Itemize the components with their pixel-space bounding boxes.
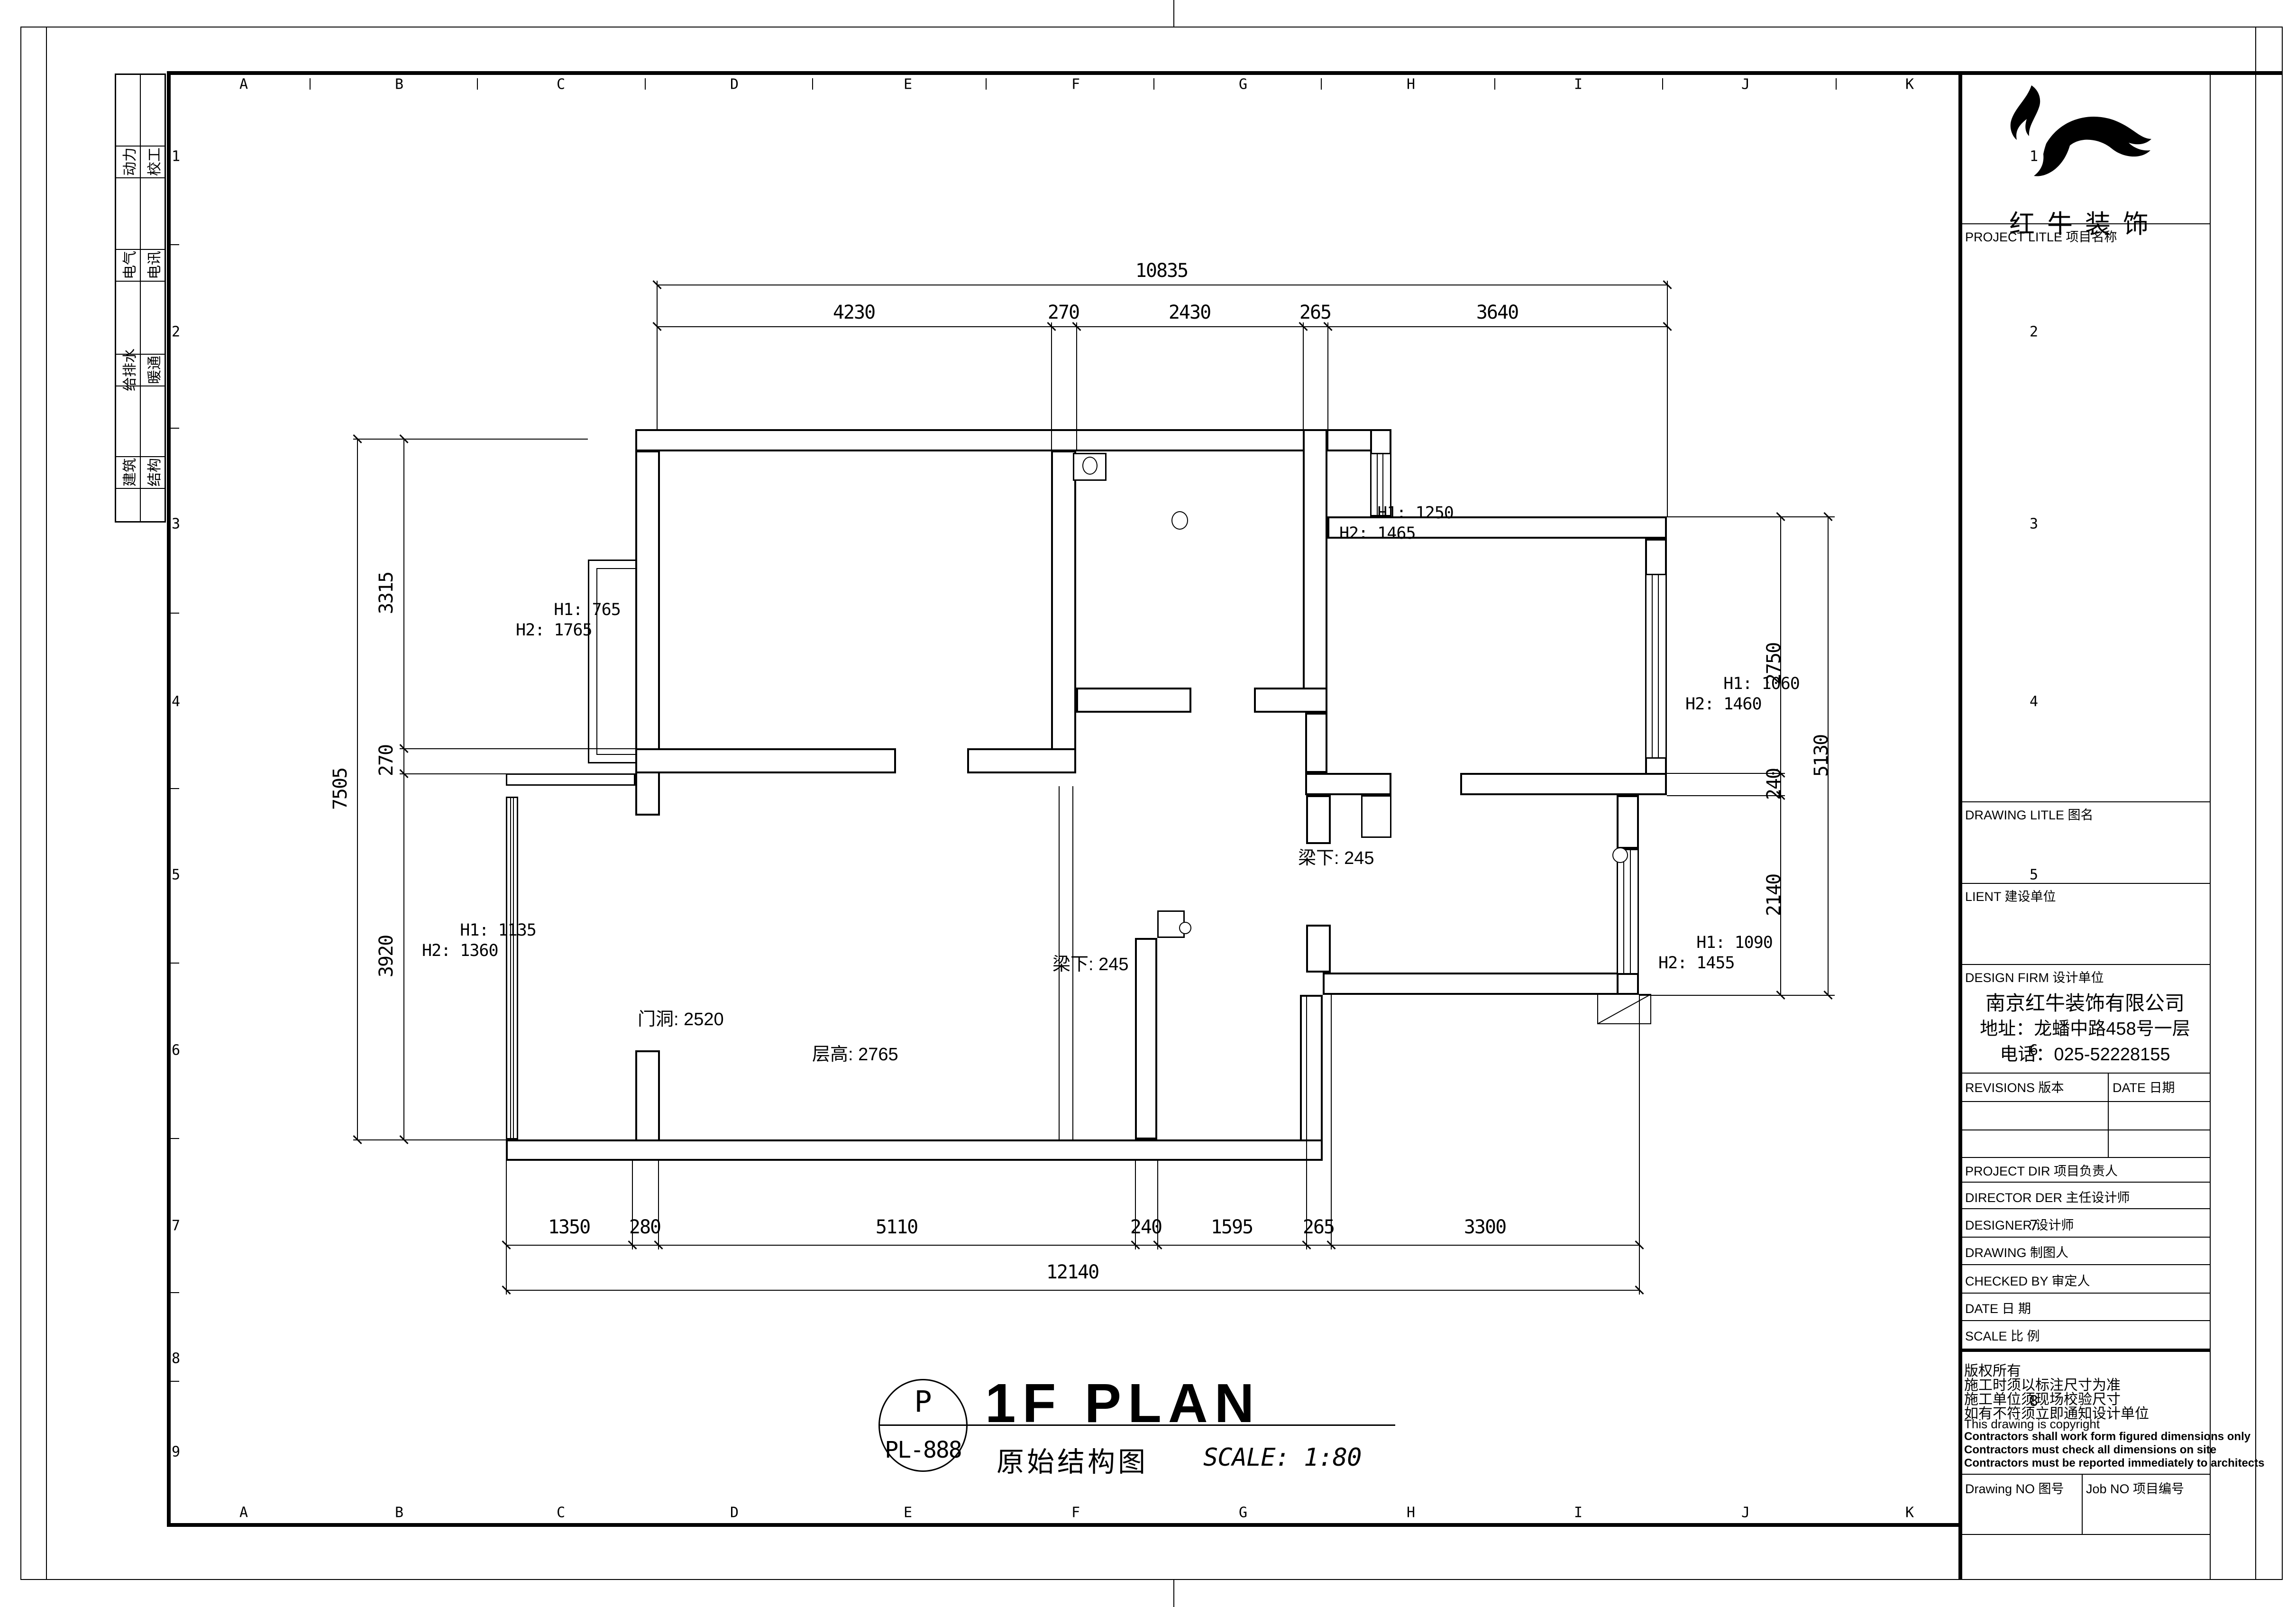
grid-letter-top: G <box>1239 76 1247 93</box>
ext-line <box>1327 322 1328 450</box>
wall-bottomright-right-upper <box>1617 795 1639 849</box>
ext-line <box>400 773 635 774</box>
grid-number-left: 1 <box>172 148 180 165</box>
tb-revisions-label: REVISIONS 版本 <box>1965 1077 2064 1096</box>
dim-left-seg: 3920 <box>375 936 397 977</box>
grid-tick <box>1494 78 1495 90</box>
tb-date-header: DATE 日期 <box>2113 1077 2175 1096</box>
wall-bedroom1-right <box>1051 450 1076 773</box>
beam-note: 梁下: 245 <box>1298 843 1374 869</box>
dim-line <box>506 1245 1639 1246</box>
dim-left-total: 7505 <box>329 768 351 810</box>
dim-top-seg: 3640 <box>1476 302 1518 323</box>
beam-note: 梁下: 245 <box>1052 949 1129 975</box>
floor-height-note: 层高: 2765 <box>812 1039 898 1065</box>
dim-line <box>403 439 404 1139</box>
dim-bottom-seg: 1595 <box>1211 1216 1253 1238</box>
tb-row-label: DIRECTOR DER 主任设计师 <box>1965 1187 2130 1206</box>
grid-letter-top: E <box>904 76 912 93</box>
grid-letter-bottom: G <box>1239 1505 1247 1521</box>
tb-line <box>1962 883 2210 884</box>
grid-letter-top: I <box>1574 76 1583 93</box>
tb-row-label: SCALE 比 例 <box>1965 1326 2040 1344</box>
tb-line <box>1962 801 2210 802</box>
dim-top-seg: 2430 <box>1169 302 1210 323</box>
grid-number-left: 8 <box>172 1350 180 1367</box>
floor-drain <box>1171 511 1188 530</box>
ext-line <box>1076 322 1077 450</box>
grid-tick <box>986 78 987 90</box>
tb-line <box>1962 1129 2210 1130</box>
grid-number-right: 3 <box>2030 516 2038 533</box>
tb-line <box>2082 1474 2083 1534</box>
discipline-label: 建筑 <box>118 458 139 487</box>
tb-line <box>1962 1320 2210 1321</box>
wall-bath-right <box>1303 429 1327 713</box>
dim-bottom-seg: 1350 <box>548 1216 590 1238</box>
wall-hall-topright <box>1305 713 1327 773</box>
tb-line <box>1962 223 2210 224</box>
ext-line <box>353 439 588 440</box>
grid-tick <box>477 78 478 90</box>
window-topright-room <box>1645 574 1667 759</box>
grid-tick <box>310 78 311 90</box>
tb-drawing-label: DRAWING LITLE 图名 <box>1965 805 2094 823</box>
tb-drawingno-label: Drawing NO 图号 <box>1965 1478 2064 1497</box>
tb-company: 南京红牛装饰有限公司 <box>1985 987 2185 1016</box>
wall-bedroom1-bottom-left <box>635 748 896 773</box>
wall-step-top <box>1370 429 1391 455</box>
grid-letter-top: D <box>730 76 739 93</box>
grid-letter-bottom: D <box>730 1505 739 1521</box>
grid-letter-top: B <box>395 76 403 93</box>
discipline-label: 电气 <box>118 251 139 279</box>
window-bottomright-room <box>1617 849 1639 974</box>
pipe-circle <box>1612 847 1628 863</box>
tb-row-label: CHECKED BY 审定人 <box>1965 1271 2090 1289</box>
grid-tick <box>645 78 646 90</box>
titleblock-divider <box>1958 71 1962 1580</box>
grid-tick <box>167 1381 179 1382</box>
grid-tick <box>1836 78 1837 90</box>
discipline-label: 电讯 <box>143 251 164 279</box>
dim-left-seg: 270 <box>375 745 397 776</box>
plan-title: 1F PLAN <box>985 1371 1261 1435</box>
tb-line <box>1962 1182 2210 1183</box>
ext-line <box>1667 516 1835 517</box>
dim-bottom-total: 12140 <box>1046 1261 1098 1283</box>
grid-letter-bottom: H <box>1407 1505 1415 1521</box>
grid-tick <box>167 1138 179 1139</box>
dim-line <box>657 326 1667 327</box>
wall-bottomright-left-upper <box>1306 795 1331 844</box>
tb-line <box>1962 1293 2210 1294</box>
title-bubble-letter: P <box>914 1385 932 1419</box>
dim-bottom-seg: 280 <box>629 1216 660 1238</box>
frame-bottom <box>167 1523 1962 1527</box>
grid-number-left: 7 <box>172 1218 180 1234</box>
ext-line <box>1639 995 1640 1295</box>
plan-scale: SCALE: 1:80 <box>1203 1443 1361 1472</box>
grid-tick <box>167 613 179 614</box>
shaft-symbol <box>1597 994 1651 1024</box>
ext-line <box>1306 995 1307 1249</box>
grid-tick <box>167 428 179 429</box>
outer-border-left2 <box>46 27 47 1580</box>
tb-firm-label: DESIGN FIRM 设计单位 <box>1965 967 2104 986</box>
tb-jobno-label: Job NO 项目编号 <box>2086 1478 2184 1497</box>
ext-line <box>1667 281 1668 516</box>
ext-line <box>657 281 658 429</box>
title-bubble-code: PL-888 <box>885 1437 961 1463</box>
grid-letter-top: K <box>1905 76 1914 93</box>
drawing-sheet: A B C D E F G H I J K A B C D E F G H I … <box>0 0 2296 1607</box>
dim-top-seg: 265 <box>1299 302 1331 323</box>
ext-line <box>353 1139 507 1140</box>
tb-line <box>1962 1237 2210 1238</box>
tb-line <box>1962 1073 2210 1074</box>
outer-border-left1 <box>20 27 21 1580</box>
frame-top <box>167 71 2283 75</box>
grid-tick <box>167 963 179 964</box>
tb-row-label: DRAWING 制图人 <box>1965 1242 2068 1261</box>
dim-top-seg: 270 <box>1048 302 1079 323</box>
dim-bottom-seg: 3300 <box>1464 1216 1506 1238</box>
grid-tick <box>167 1292 179 1293</box>
window-label: H1: 765H2: 1765 <box>516 579 621 661</box>
dim-line <box>357 439 358 1139</box>
ext-line <box>1639 995 1835 996</box>
tb-line <box>1962 1474 2210 1475</box>
grid-letter-bottom: B <box>395 1505 403 1521</box>
frame-left <box>167 71 171 1527</box>
wall-living-bottom <box>506 1139 1323 1161</box>
discipline-label: 结构 <box>143 458 164 487</box>
wall-bedroom1-bottom-right <box>967 748 1076 773</box>
dim-top-total: 10835 <box>1135 260 1188 282</box>
grid-letter-top: J <box>1741 76 1750 93</box>
window-label: H1: 1060H2: 1460 <box>1685 653 1800 735</box>
grid-letter-top: H <box>1407 76 1415 93</box>
tb-line <box>1962 1208 2210 1209</box>
discipline-label: 给排水 <box>118 349 139 391</box>
door-opening-note: 门洞: 2520 <box>638 1004 724 1030</box>
brand-logo-icon <box>2001 83 2171 185</box>
dim-right-outer: 5130 <box>1811 735 1832 777</box>
outer-border-right2 <box>2282 27 2283 1580</box>
ext-line <box>1331 995 1332 1249</box>
wall-bottomright-bottom <box>1323 973 1639 995</box>
titleblock-right-edge <box>2210 73 2211 1579</box>
plan-subtitle-cn: 原始结构图 <box>997 1440 1148 1479</box>
tb-line <box>1962 1157 2210 1158</box>
grid-tick <box>167 244 179 245</box>
tb-line-thick <box>1962 1349 2210 1352</box>
tb-note: This drawing is copyright <box>1964 1417 2100 1432</box>
tb-row-label: DESIGNER 设计师 <box>1965 1215 2074 1233</box>
tb-address: 地址：龙蟠中路458号一层 <box>1980 1014 2190 1040</box>
tb-phone: 电话：025-52228155 <box>2000 1039 2170 1065</box>
grid-letter-bottom: A <box>239 1505 248 1521</box>
wall-step <box>1300 995 1323 1161</box>
grid-number-left: 5 <box>172 867 180 883</box>
dim-left-seg: 3315 <box>375 572 397 614</box>
window-label: H1: 1250H2: 1465 <box>1339 483 1454 564</box>
discipline-label: 暖通 <box>143 356 164 384</box>
grid-number-left: 4 <box>172 694 180 710</box>
discipline-label: 动力 <box>118 147 139 176</box>
flue-circle <box>1082 457 1098 475</box>
grid-letter-bottom: J <box>1741 1505 1750 1521</box>
dim-right-seg: 240 <box>1763 769 1785 800</box>
grid-number-left: 2 <box>172 324 180 340</box>
tb-note: Contractors must check all dimensions on… <box>1964 1443 2216 1457</box>
grid-letter-top: F <box>1071 76 1080 93</box>
grid-letter-bottom: K <box>1905 1505 1914 1521</box>
grid-number-left: 9 <box>172 1444 180 1460</box>
window-label: H1: 1090H2: 1455 <box>1658 912 1773 994</box>
wall-mid-right-b <box>1460 773 1667 795</box>
wall-top <box>635 429 1391 451</box>
outer-border-top <box>20 27 2283 28</box>
ext-line <box>400 748 635 749</box>
dim-bottom-seg: 5110 <box>876 1216 917 1238</box>
grid-letter-bottom: I <box>1574 1505 1583 1521</box>
grid-number-right: 5 <box>2030 867 2038 883</box>
tb-line <box>1962 1534 2210 1535</box>
wall-bath-bottom-right <box>1254 688 1327 713</box>
grid-tick <box>1153 78 1154 90</box>
outer-border-bottom <box>20 1579 2283 1580</box>
window-label: H1: 1135H2: 1360 <box>422 900 536 982</box>
ext-line <box>1303 322 1304 450</box>
outer-border-right1 <box>2255 27 2256 1580</box>
fold-mark-bottom <box>1173 1579 1174 1607</box>
wall-bottomright-left-lower <box>1306 925 1331 973</box>
fold-mark-top <box>1173 0 1174 27</box>
tb-row-label: DATE 日 期 <box>1965 1298 2031 1317</box>
grid-letter-top: A <box>239 76 248 93</box>
grid-letter-bottom: F <box>1071 1505 1080 1521</box>
dim-bottom-seg: 265 <box>1303 1216 1334 1238</box>
grid-tick <box>812 78 813 90</box>
tb-row-label: PROJECT DIR 项目负责人 <box>1965 1161 2118 1179</box>
grid-number-left: 3 <box>172 516 180 533</box>
tb-line <box>1962 1101 2210 1102</box>
wall-living-right <box>1135 938 1157 1139</box>
wall-mid-right-a <box>1305 773 1391 795</box>
grid-tick <box>1662 78 1663 90</box>
tb-note: Contractors shall work form figured dime… <box>1964 1430 2250 1443</box>
dim-right-seg: 2140 <box>1763 874 1785 916</box>
dim-bottom-seg: 240 <box>1130 1216 1162 1238</box>
grid-tick <box>1321 78 1322 90</box>
tb-note: Contractors must be reported immediately… <box>1964 1457 2265 1470</box>
wall-bottomright-right-lower <box>1617 973 1639 995</box>
tb-project-label: PROJECT LITLE 项目名称 <box>1965 227 2117 245</box>
wall-balcony-top <box>506 773 635 786</box>
wall-topright-room-right-upper <box>1645 539 1667 577</box>
tb-line <box>2108 1073 2109 1157</box>
ext-line <box>506 1161 507 1295</box>
tb-line <box>1962 1264 2210 1265</box>
tb-line <box>1962 964 2210 965</box>
grid-letter-bottom: E <box>904 1505 912 1521</box>
wall-bath-bottom-left <box>1076 688 1191 713</box>
dim-line <box>657 285 1667 285</box>
tb-client-label: LIENT 建设单位 <box>1965 886 2056 905</box>
grid-tick <box>167 788 179 789</box>
dim-line <box>1780 516 1781 995</box>
ext-line <box>1051 322 1052 450</box>
grid-number-left: 6 <box>172 1042 180 1059</box>
discipline-table: 动力 校工 电气 电讯 给排水 暖通 建筑 结构 <box>115 73 166 523</box>
dim-top-seg: 4230 <box>833 302 875 323</box>
pipe-circle <box>1179 922 1191 934</box>
grid-number-right: 4 <box>2030 694 2038 710</box>
grid-letter-top: C <box>557 76 565 93</box>
discipline-label: 校工 <box>143 147 164 176</box>
column-nib-hall <box>1361 795 1391 838</box>
grid-letter-bottom: C <box>557 1505 565 1521</box>
dim-line <box>506 1290 1639 1291</box>
grid-number-right: 2 <box>2030 324 2038 340</box>
